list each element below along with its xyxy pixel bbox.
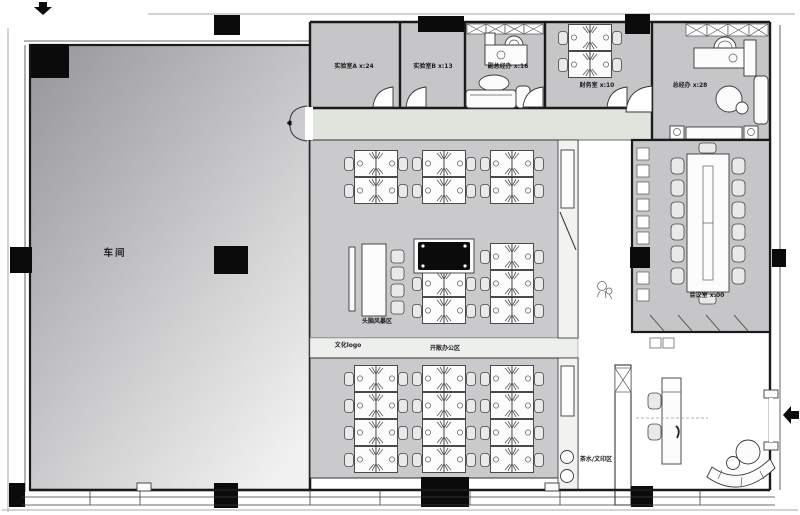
lobby bbox=[615, 338, 775, 505]
workshop-floor bbox=[30, 45, 310, 490]
label-gm: 总经办 x:28 bbox=[673, 81, 708, 89]
wall-seats bbox=[637, 148, 649, 301]
label-workshop: 车间 bbox=[103, 247, 126, 259]
corridor bbox=[308, 108, 652, 140]
side-sofa bbox=[754, 76, 768, 124]
label-logo-wall: 文化logo bbox=[334, 341, 362, 349]
bench bbox=[686, 127, 742, 139]
ball-stool bbox=[736, 440, 760, 464]
right-entrance-arrow-icon bbox=[783, 406, 799, 424]
executive-desk bbox=[694, 48, 752, 68]
label-lab-a: 实验室A x:24 bbox=[334, 62, 373, 70]
label-vice-gm: 副总经办 x:16 bbox=[488, 62, 529, 70]
coffee-table bbox=[479, 75, 509, 91]
water-dispenser bbox=[561, 470, 574, 483]
ball-stool bbox=[727, 457, 740, 470]
floor-plan-canvas: 车间 实验室A x:24 实验室B x:13 副总经办 x:16 财务室 x:1… bbox=[0, 0, 800, 515]
label-open-office: 开敞办公区 bbox=[430, 344, 460, 352]
label-lab-b: 实验室B x:13 bbox=[413, 62, 452, 70]
room-workshop bbox=[24, 41, 310, 492]
cabinet-row bbox=[467, 24, 543, 34]
label-finance: 财务室 x:10 bbox=[579, 81, 615, 89]
label-meeting-room: 会议室 x:00 bbox=[690, 291, 725, 299]
water-dispenser bbox=[561, 451, 574, 464]
cabinet-row bbox=[686, 24, 768, 36]
floor-plan-drawing: 车间 实验室A x:24 实验室B x:13 副总经办 x:16 财务室 x:1… bbox=[0, 0, 800, 515]
desk bbox=[485, 45, 527, 65]
reception-desk bbox=[662, 378, 681, 464]
open-office-area bbox=[310, 140, 578, 490]
label-brainstorm: 头脑风暴区 bbox=[362, 317, 392, 325]
whiteboard bbox=[349, 247, 355, 311]
sofa bbox=[466, 90, 516, 108]
brainstorm-table bbox=[362, 244, 386, 316]
label-tea-print: 茶水/文印区 bbox=[579, 455, 612, 463]
plant-icon bbox=[597, 282, 612, 300]
side-partition bbox=[558, 140, 578, 490]
room-meeting bbox=[632, 140, 770, 332]
desk-return bbox=[744, 40, 756, 76]
top-entrance-arrow-icon bbox=[34, 2, 52, 15]
meeting-pod-table bbox=[414, 239, 474, 273]
